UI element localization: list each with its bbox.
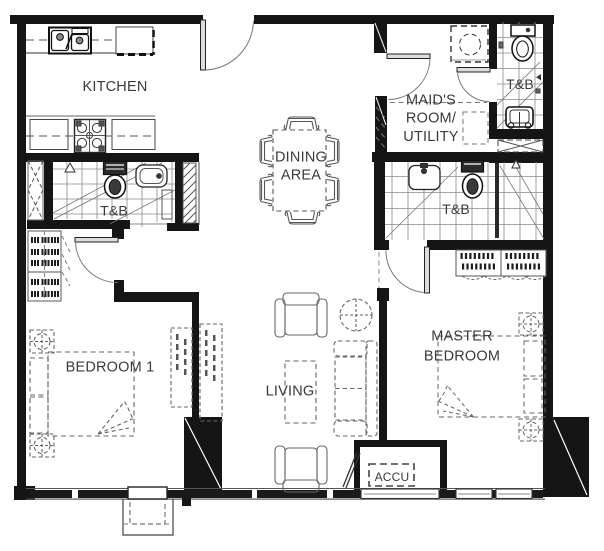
svg-text:T&B: T&B <box>100 203 128 219</box>
svg-text:T&B: T&B <box>506 76 534 92</box>
svg-text:UTILITY: UTILITY <box>403 129 459 145</box>
svg-text:BEDROOM 1: BEDROOM 1 <box>66 360 155 376</box>
svg-text:AREA: AREA <box>281 168 321 184</box>
svg-text:BEDROOM: BEDROOM <box>424 349 500 365</box>
svg-text:LIVING: LIVING <box>266 384 315 400</box>
svg-text:KITCHEN: KITCHEN <box>82 79 147 95</box>
svg-text:ROOM/: ROOM/ <box>406 111 457 127</box>
svg-text:ACCU: ACCU <box>375 470 410 484</box>
svg-text:MASTER: MASTER <box>431 329 493 345</box>
svg-text:T&B: T&B <box>442 201 470 217</box>
svg-text:MAID'S: MAID'S <box>406 93 456 109</box>
svg-text:DINING: DINING <box>275 150 327 166</box>
